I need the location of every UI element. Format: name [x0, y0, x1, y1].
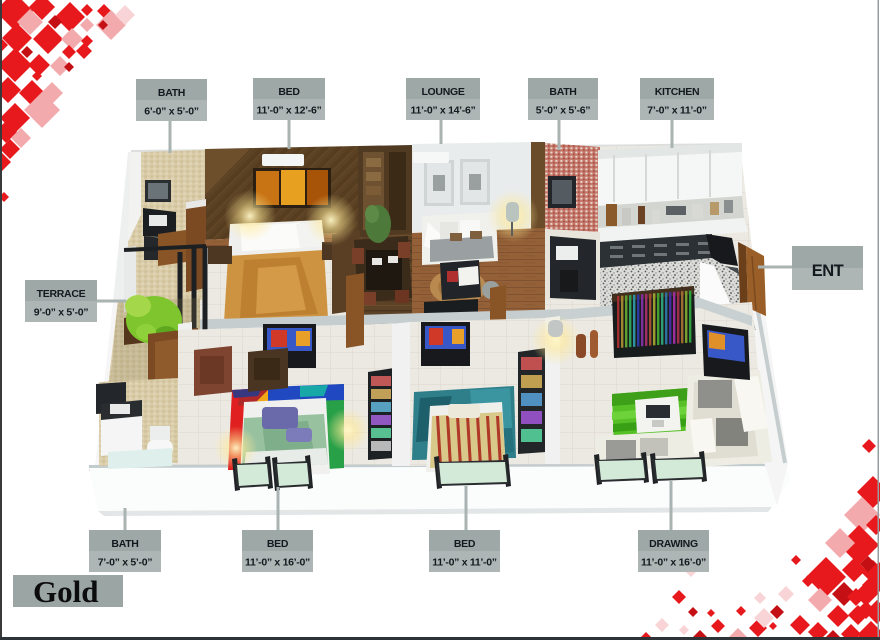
svg-text:11’-0” x 12’-6”: 11’-0” x 12’-6”: [257, 105, 322, 117]
svg-text:Gold: Gold: [33, 574, 98, 609]
svg-text:9’-0” x 5’-0”: 9’-0” x 5’-0”: [34, 307, 89, 319]
svg-text:11’-0” x 16’-0”: 11’-0” x 16’-0”: [245, 557, 310, 569]
svg-text:BATH: BATH: [111, 538, 138, 550]
svg-text:BATH: BATH: [549, 86, 576, 98]
svg-text:BED: BED: [454, 538, 476, 550]
svg-text:11’-0” x 16’-0”: 11’-0” x 16’-0”: [641, 557, 706, 569]
svg-text:6’-0” x 5’-0”: 6’-0” x 5’-0”: [144, 106, 199, 118]
svg-text:5’-0” x 5’-6”: 5’-0” x 5’-6”: [536, 105, 591, 117]
svg-text:11’-0” x 14’-6”: 11’-0” x 14’-6”: [411, 105, 476, 117]
svg-text:TERRACE: TERRACE: [37, 288, 86, 300]
svg-text:7’-0” x 11’-0”: 7’-0” x 11’-0”: [647, 105, 706, 117]
svg-text:LOUNGE: LOUNGE: [421, 86, 464, 98]
svg-text:BED: BED: [267, 538, 289, 550]
svg-text:BED: BED: [278, 86, 300, 98]
svg-text:BATH: BATH: [158, 87, 185, 99]
svg-text:11’-0” x 11’-0”: 11’-0” x 11’-0”: [432, 557, 496, 569]
svg-text:7’-0” x 5’-0”: 7’-0” x 5’-0”: [98, 557, 153, 569]
svg-text:KITCHEN: KITCHEN: [655, 86, 700, 98]
svg-text:ENT: ENT: [812, 262, 844, 280]
svg-text:DRAWING: DRAWING: [649, 538, 698, 550]
